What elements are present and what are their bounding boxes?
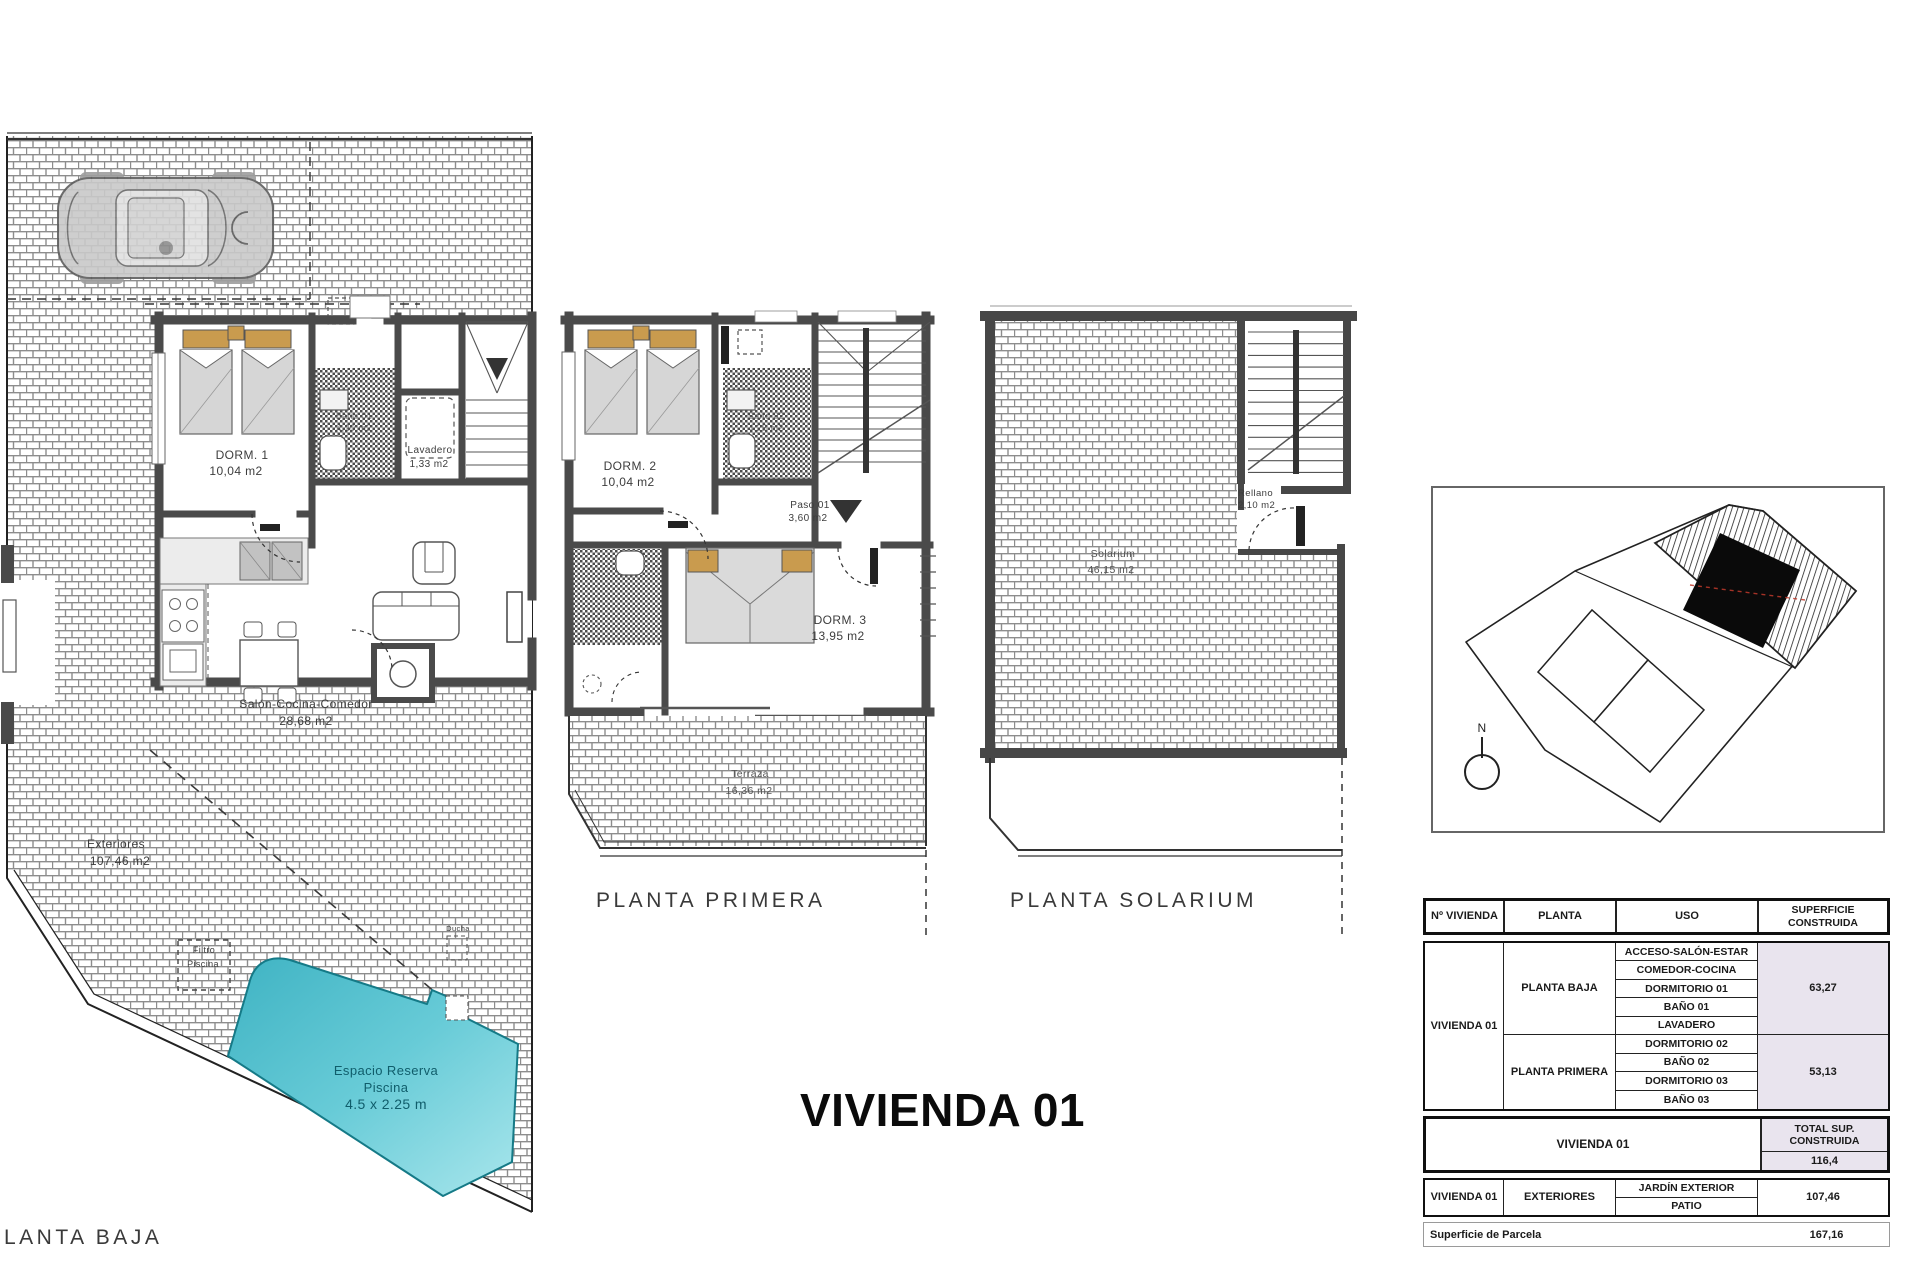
- planta-baja-title: LANTA BAJA: [4, 1226, 162, 1250]
- bano1-label: Baño 01: [336, 412, 372, 421]
- dorm3-label: DORM. 3: [814, 614, 867, 626]
- cell-planta-primera: PLANTA PRIMERA: [1504, 1035, 1616, 1109]
- table-total: VIVIENDA 01 TOTAL SUP. CONSTRUIDA 116,4: [1423, 1116, 1890, 1173]
- lavadero-label: Lavadero: [408, 446, 453, 456]
- cell-superficie-primera: 53,13: [1758, 1035, 1888, 1109]
- paso-label: Paso 01: [790, 501, 830, 511]
- planta-solarium-plan: [985, 306, 1352, 935]
- page-title: VIVIENDA 01: [800, 1083, 1085, 1137]
- dorm2-area: 10,04 m2: [601, 476, 654, 488]
- parcela-value: 167,16: [1764, 1229, 1889, 1241]
- cell-uso: LAVADERO: [1616, 1017, 1758, 1035]
- bano1-area: 4,20 m2: [336, 424, 371, 433]
- planta-solarium-title: PLANTA SOLARIUM: [1010, 889, 1257, 913]
- cell-uso: DORMITORIO 01: [1616, 980, 1758, 998]
- dorm1-area: 10,04 m2: [209, 465, 262, 477]
- header-superficie: SUPERFICIE CONSTRUIDA: [1759, 901, 1887, 932]
- car-icon: [58, 172, 273, 284]
- solarium-area: 46,15 m2: [1088, 565, 1135, 576]
- bano2-label: Baño 02: [748, 412, 784, 421]
- piscina-label1: Espacio Reserva: [334, 1064, 438, 1077]
- planta-primera-title: PLANTA PRIMERA: [596, 889, 826, 913]
- paso-area: 3,60 m2: [789, 514, 828, 524]
- lavadero-area: 1,33 m2: [410, 460, 449, 470]
- cell-uso: DORMITORIO 03: [1616, 1072, 1758, 1090]
- piscina-label2: Piscina: [364, 1081, 409, 1094]
- rellano-label: Rellano: [1238, 489, 1273, 499]
- planta-primera-plan: [562, 311, 936, 938]
- cell-uso: DORMITORIO 02: [1616, 1035, 1758, 1053]
- terraza-area: 16,36 m2: [726, 786, 773, 797]
- rellano-area: 2,10 m2: [1238, 501, 1275, 511]
- filtro-label2: Piscina: [187, 960, 219, 969]
- page: DORM. 1 10,04 m2 Baño 01 4,20 m2 Lavader…: [0, 0, 1920, 1280]
- exteriores-label: Exteriores: [87, 838, 145, 850]
- cell-uso: BAÑO 01: [1616, 998, 1758, 1016]
- cell-uso: COMEDOR-COCINA: [1616, 961, 1758, 979]
- ext-vivienda: VIVIENDA 01: [1425, 1180, 1504, 1215]
- filtro-label: Filtro: [193, 946, 215, 955]
- cell-uso: ACCESO-SALÓN-ESTAR: [1616, 943, 1758, 961]
- header-n-vivienda: Nº VIVIENDA: [1426, 901, 1505, 932]
- site-plan: [1432, 487, 1884, 832]
- table-exteriores: VIVIENDA 01 EXTERIORES JARDÍN EXTERIOR P…: [1423, 1178, 1890, 1217]
- salon-label: Salón-Cocina-Comedor: [239, 698, 372, 710]
- dorm2-label: DORM. 2: [604, 460, 657, 472]
- piscina-label3: 4.5 x 2.25 m: [345, 1097, 427, 1111]
- cell-vivienda: VIVIENDA 01: [1425, 943, 1504, 1109]
- header-uso: USO: [1617, 901, 1759, 932]
- ext-planta: EXTERIORES: [1504, 1180, 1616, 1215]
- solarium-label: Solarium: [1091, 549, 1136, 560]
- cell-planta-baja: PLANTA BAJA: [1504, 943, 1616, 1035]
- table-header: Nº VIVIENDA PLANTA USO SUPERFICIE CONSTR…: [1423, 898, 1890, 935]
- bano2-area: 4,25 m2: [748, 424, 783, 433]
- salon-area: 28,68 m2: [279, 715, 332, 727]
- bed-icon: [686, 548, 814, 643]
- total-value: 116,4: [1762, 1152, 1887, 1170]
- cell-uso: BAÑO 02: [1616, 1054, 1758, 1072]
- ext-uso1: JARDÍN EXTERIOR: [1616, 1180, 1758, 1198]
- planta-baja-plan: [0, 133, 532, 1212]
- parcela-label: Superficie de Parcela: [1424, 1229, 1764, 1241]
- ducha-label: Ducha: [446, 925, 470, 933]
- cell-superficie-baja: 63,27: [1758, 943, 1888, 1035]
- exteriores-area: 107,46 m2: [90, 855, 150, 867]
- dorm1-label: DORM. 1: [216, 449, 269, 461]
- terraza-label: Terraza: [731, 769, 769, 780]
- table-main: VIVIENDA 01 PLANTA BAJA PLANTA PRIMERA A…: [1423, 941, 1890, 1111]
- total-vivienda: VIVIENDA 01: [1426, 1119, 1762, 1170]
- cell-uso: BAÑO 03: [1616, 1091, 1758, 1109]
- dorm3-area: 13,95 m2: [811, 630, 864, 642]
- header-planta: PLANTA: [1505, 901, 1617, 932]
- table-parcela: Superficie de Parcela 167,16: [1423, 1222, 1890, 1247]
- ext-superficie: 107,46: [1758, 1180, 1888, 1215]
- total-header-line2: CONSTRUIDA: [1790, 1135, 1860, 1147]
- total-header-line1: TOTAL SUP.: [1795, 1123, 1855, 1135]
- compass-label: N: [1477, 722, 1486, 734]
- ext-uso2: PATIO: [1616, 1198, 1758, 1215]
